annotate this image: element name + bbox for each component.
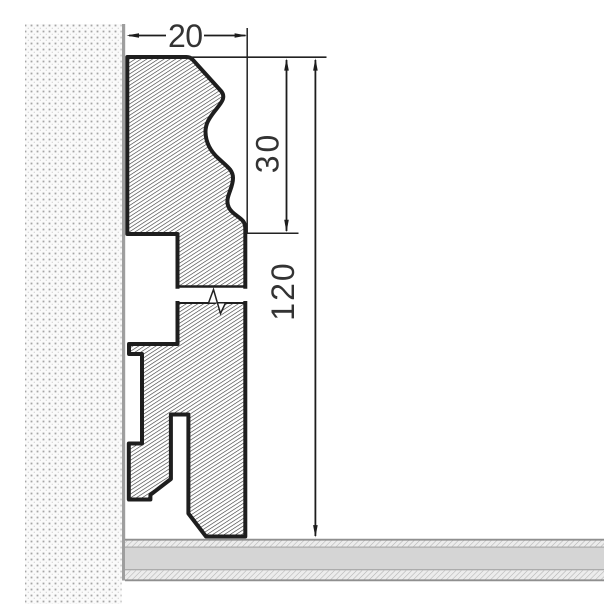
svg-text:30: 30 [250,132,286,174]
svg-text:120: 120 [265,261,301,320]
svg-text:20: 20 [168,18,203,54]
